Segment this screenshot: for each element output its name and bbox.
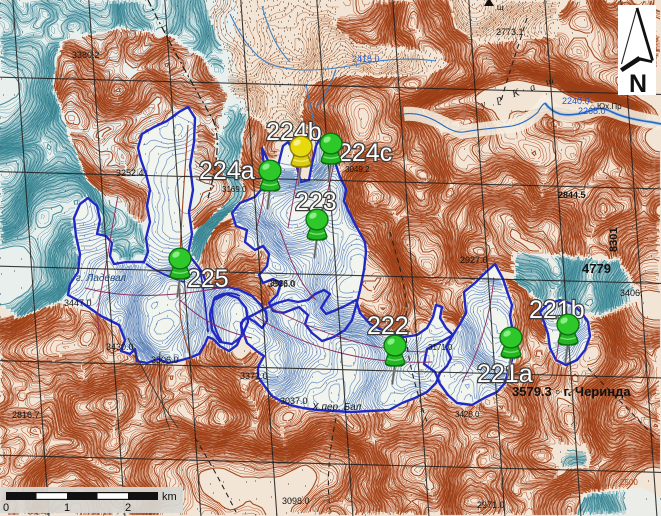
svg-text:4779: 4779 [582,261,611,276]
svg-text:221a: 221a [477,360,533,388]
svg-text:2: 2 [125,502,131,514]
svg-text:2971.0: 2971.0 [477,500,505,510]
svg-text:N: N [629,70,647,98]
svg-text:8301: 8301 [608,228,620,252]
svg-text:224c: 224c [338,139,392,167]
svg-text:3428.0: 3428.0 [455,410,480,419]
svg-text:щ: щ [497,3,504,12]
svg-text:2927.0: 2927.0 [460,255,488,265]
svg-text:km: km [162,491,177,503]
svg-text:0: 0 [3,502,9,514]
svg-text:2500: 2500 [326,495,344,504]
svg-text:3169.0: 3169.0 [222,185,247,194]
svg-text:2700: 2700 [350,37,368,46]
svg-text:Х пер. Бал: Х пер. Бал [311,402,362,413]
svg-text:г. Ладевал: г. Ладевал [76,273,126,284]
svg-text:3526.0: 3526.0 [270,279,295,288]
svg-text:3447.0: 3447.0 [64,298,92,308]
svg-text:2240.0: 2240.0 [562,96,590,106]
svg-text:2816.7: 2816.7 [12,410,40,420]
svg-text:225: 225 [187,265,229,293]
svg-text:3380.2: 3380.2 [72,50,100,60]
svg-text:1: 1 [64,502,70,514]
svg-text:2415.0: 2415.0 [352,54,380,64]
svg-text:3252.4: 3252.4 [116,168,144,178]
svg-text:2500: 2500 [620,478,638,487]
svg-text:3306.0: 3306.0 [151,355,179,365]
svg-text:3406,: 3406, [620,288,643,298]
svg-text:3037.0: 3037.0 [280,396,308,406]
svg-text:2844.5: 2844.5 [558,190,586,200]
svg-text:3372.0: 3372.0 [240,371,268,381]
svg-text:3171.0: 3171.0 [428,343,453,352]
svg-text:224a: 224a [199,157,255,185]
svg-text:3430.0: 3430.0 [106,342,134,352]
svg-text:2773.1: 2773.1 [496,27,524,37]
svg-text:222: 222 [367,312,409,340]
svg-text:3098.0: 3098.0 [282,496,310,506]
svg-text:⌂ Юх.Пр: ⌂ Юх.Пр [590,102,622,111]
